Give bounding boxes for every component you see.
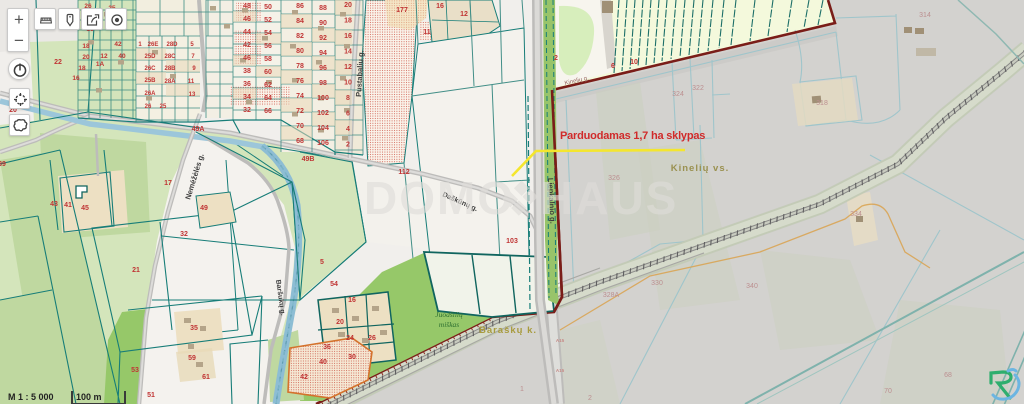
svg-text:54: 54 (264, 30, 272, 37)
svg-text:2: 2 (346, 142, 350, 149)
svg-text:18: 18 (78, 65, 86, 72)
svg-text:A15: A15 (556, 368, 565, 373)
svg-text:41: 41 (64, 202, 72, 209)
svg-text:86: 86 (296, 3, 304, 10)
svg-text:Juodšilių: Juodšilių (435, 310, 463, 319)
svg-text:10: 10 (630, 59, 638, 66)
svg-text:17: 17 (164, 180, 172, 187)
svg-text:21: 21 (132, 267, 140, 274)
svg-text:36: 36 (323, 344, 331, 351)
svg-text:18: 18 (82, 43, 90, 50)
svg-text:22: 22 (54, 59, 62, 66)
svg-text:26C: 26C (144, 66, 156, 72)
svg-text:32: 32 (180, 231, 188, 238)
svg-text:26: 26 (145, 104, 152, 110)
svg-text:52: 52 (264, 17, 272, 24)
svg-text:miškas: miškas (439, 320, 459, 329)
svg-text:334: 334 (850, 211, 862, 218)
svg-text:6: 6 (611, 63, 615, 70)
svg-text:54: 54 (330, 281, 338, 288)
svg-text:12: 12 (344, 64, 352, 71)
svg-text:DOMO: DOMO (364, 172, 515, 224)
svg-text:36: 36 (243, 81, 251, 88)
svg-text:46: 46 (243, 16, 251, 23)
svg-text:2: 2 (588, 395, 592, 402)
svg-text:A15: A15 (556, 338, 565, 343)
svg-text:42: 42 (114, 41, 122, 48)
svg-text:62: 62 (264, 82, 272, 89)
svg-text:68: 68 (944, 372, 952, 379)
svg-text:98: 98 (319, 80, 327, 87)
svg-text:38: 38 (243, 68, 251, 75)
svg-text:26E: 26E (148, 42, 159, 48)
svg-text:16: 16 (436, 3, 444, 10)
svg-text:18: 18 (344, 18, 352, 25)
svg-text:72: 72 (296, 108, 304, 115)
svg-text:340: 340 (746, 283, 758, 290)
svg-text:4: 4 (346, 126, 350, 133)
svg-text:94: 94 (319, 50, 327, 57)
svg-text:46: 46 (243, 55, 251, 62)
svg-text:49A: 49A (192, 126, 205, 133)
svg-text:66: 66 (264, 108, 272, 115)
svg-text:96: 96 (319, 65, 327, 72)
svg-text:5: 5 (320, 259, 324, 266)
svg-text:2: 2 (554, 55, 558, 62)
svg-text:14: 14 (344, 49, 352, 56)
svg-text:20: 20 (82, 54, 90, 61)
svg-text:53: 53 (131, 367, 139, 374)
svg-text:102: 102 (317, 110, 329, 117)
svg-text:40: 40 (118, 53, 126, 60)
svg-text:28A: 28A (164, 79, 176, 85)
svg-text:Kinelių vs.: Kinelių vs. (671, 163, 730, 174)
svg-text:24: 24 (346, 335, 354, 342)
svg-text:30: 30 (348, 354, 356, 361)
svg-text:64: 64 (264, 95, 272, 102)
svg-text:1A: 1A (96, 61, 105, 68)
svg-text:16: 16 (72, 75, 80, 82)
svg-text:12: 12 (100, 53, 108, 60)
svg-text:74: 74 (296, 93, 304, 100)
svg-text:49B: 49B (302, 156, 315, 163)
svg-text:70: 70 (884, 388, 892, 395)
svg-text:42: 42 (300, 374, 308, 381)
svg-text:40: 40 (319, 359, 327, 366)
svg-text:322: 322 (692, 85, 704, 92)
svg-text:6: 6 (346, 111, 350, 118)
svg-text:25B: 25B (144, 78, 156, 84)
svg-text:330: 330 (651, 280, 663, 287)
svg-text:13: 13 (189, 92, 196, 98)
svg-text:28C: 28C (164, 54, 176, 60)
svg-text:103: 103 (506, 238, 518, 245)
svg-text:70: 70 (296, 123, 304, 130)
svg-text:88: 88 (319, 5, 327, 12)
svg-text:35: 35 (190, 325, 198, 332)
svg-text:42: 42 (243, 42, 251, 49)
svg-text:59: 59 (188, 355, 196, 362)
svg-text:32: 32 (243, 107, 251, 114)
svg-text:49: 49 (200, 205, 208, 212)
svg-text:16: 16 (348, 297, 356, 304)
svg-text:314: 314 (919, 12, 931, 19)
svg-text:318: 318 (816, 100, 828, 107)
svg-text:92: 92 (319, 35, 327, 42)
svg-text:16: 16 (344, 33, 352, 40)
svg-text:HAUS: HAUS (540, 172, 678, 224)
svg-text:20: 20 (336, 319, 344, 326)
svg-text:34: 34 (243, 94, 251, 101)
svg-text:25D: 25D (144, 54, 156, 60)
svg-text:26: 26 (368, 335, 376, 342)
svg-text:28B: 28B (164, 66, 176, 72)
svg-text:45: 45 (81, 205, 89, 212)
svg-text:43: 43 (50, 201, 58, 208)
svg-text:48: 48 (243, 3, 251, 10)
svg-text:60: 60 (264, 69, 272, 76)
svg-text:78: 78 (296, 63, 304, 70)
svg-text:20: 20 (344, 2, 352, 9)
svg-text:25: 25 (160, 104, 167, 110)
svg-text:82: 82 (296, 33, 304, 40)
svg-text:11: 11 (188, 79, 195, 85)
svg-text:104: 104 (317, 125, 329, 132)
svg-text:324: 324 (672, 91, 684, 98)
svg-text:177: 177 (396, 7, 408, 14)
svg-text:39: 39 (0, 161, 6, 168)
svg-text:44: 44 (243, 29, 251, 36)
svg-text:50: 50 (264, 4, 272, 11)
svg-text:1: 1 (520, 386, 524, 393)
svg-text:51: 51 (147, 392, 155, 399)
svg-text:Baraškų k.: Baraškų k. (479, 325, 537, 336)
svg-text:328A: 328A (603, 292, 620, 299)
svg-text:12: 12 (460, 11, 468, 18)
svg-text:8: 8 (346, 95, 350, 102)
svg-text:68: 68 (296, 138, 304, 145)
svg-text:80: 80 (296, 48, 304, 55)
svg-text:28D: 28D (166, 42, 178, 48)
svg-text:76: 76 (296, 78, 304, 85)
svg-text:56: 56 (264, 43, 272, 50)
svg-text:84: 84 (296, 18, 304, 25)
svg-text:61: 61 (202, 374, 210, 381)
svg-text:26A: 26A (144, 91, 156, 97)
svg-text:90: 90 (319, 20, 327, 27)
svg-text:106: 106 (317, 140, 329, 147)
svg-text:58: 58 (264, 56, 272, 63)
svg-text:10: 10 (344, 80, 352, 87)
svg-text:11: 11 (423, 29, 431, 36)
svg-text:Parduodamas 1,7 ha sklypas: Parduodamas 1,7 ha sklypas (560, 130, 705, 142)
svg-text:100: 100 (317, 95, 329, 102)
